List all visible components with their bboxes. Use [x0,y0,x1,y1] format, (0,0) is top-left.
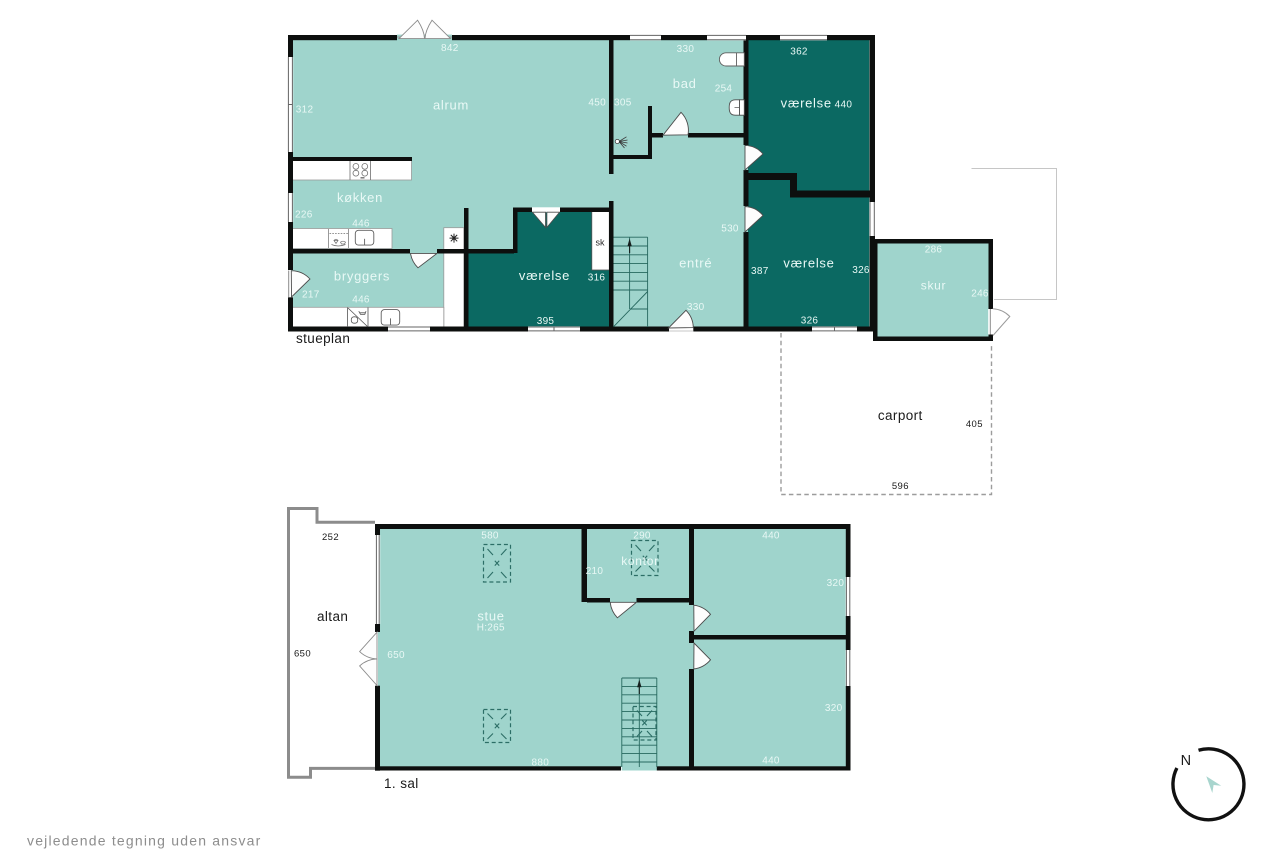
svg-text:køkken: køkken [337,190,383,205]
svg-text:stue: stue [477,609,504,624]
svg-text:226: 226 [295,210,313,221]
svg-text:326: 326 [801,315,819,326]
svg-text:362: 362 [790,47,808,58]
svg-text:værelse: værelse [783,256,834,271]
svg-text:330: 330 [677,44,695,55]
svg-text:316: 316 [588,273,606,284]
svg-text:405: 405 [966,419,983,430]
svg-text:sk: sk [596,237,606,247]
svg-text:330: 330 [687,302,705,313]
svg-text:246: 246 [971,289,989,300]
svg-text:580: 580 [481,531,499,542]
svg-text:596: 596 [892,481,909,492]
svg-text:kontor: kontor [621,554,659,568]
svg-text:217: 217 [302,289,320,300]
svg-text:880: 880 [532,757,550,768]
svg-text:395: 395 [537,316,555,327]
svg-text:N: N [1181,753,1192,769]
svg-text:altan: altan [317,609,348,624]
svg-text:værelse: værelse [519,268,570,283]
svg-text:450: 450 [588,97,606,108]
svg-text:bad: bad [673,76,697,91]
svg-text:252: 252 [322,532,339,543]
svg-text:440: 440 [762,756,780,767]
svg-text:440: 440 [835,100,853,111]
svg-text:carport: carport [878,408,923,423]
svg-text:alrum: alrum [433,98,469,113]
svg-text:650: 650 [387,650,405,661]
svg-text:312: 312 [296,104,314,115]
svg-text:326: 326 [852,265,870,276]
svg-text:bryggers: bryggers [334,269,390,284]
svg-text:305: 305 [614,97,632,108]
svg-text:H:265: H:265 [477,622,505,633]
svg-text:entré: entré [679,255,712,270]
svg-text:320: 320 [827,578,845,589]
svg-text:650: 650 [294,649,311,660]
svg-text:290: 290 [633,531,651,542]
svg-text:skur: skur [921,279,946,293]
svg-text:vejledende tegning uden ansvar: vejledende tegning uden ansvar [27,833,262,849]
svg-text:320: 320 [825,703,843,714]
svg-text:440: 440 [762,531,780,542]
svg-text:værelse: værelse [781,96,832,111]
svg-text:stueplan: stueplan [296,331,350,346]
svg-text:446: 446 [352,219,370,230]
svg-text:286: 286 [925,244,943,255]
svg-text:210: 210 [586,566,604,577]
svg-text:254: 254 [715,84,733,95]
svg-text:387: 387 [751,266,769,277]
svg-text:842: 842 [441,43,459,54]
svg-text:446: 446 [352,294,370,305]
svg-text:530: 530 [721,223,739,234]
svg-text:1. sal: 1. sal [384,776,419,791]
